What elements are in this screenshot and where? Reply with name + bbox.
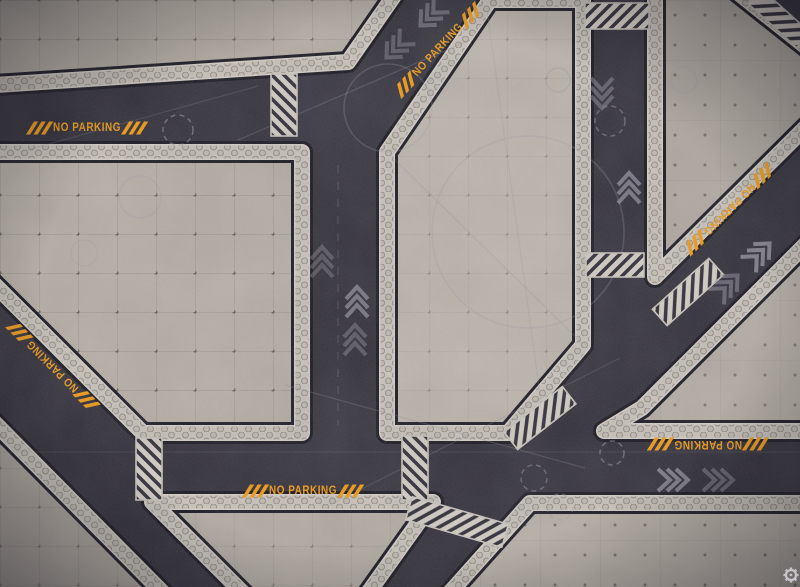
gear-logo-icon (784, 568, 799, 583)
vignette-overlay (0, 0, 800, 587)
game-mat-texture: NO PARKING NO PARKING NO PARKING NO PARK… (0, 0, 800, 587)
game-mat-viewport: NO PARKING NO PARKING NO PARKING NO PARK… (0, 0, 800, 587)
